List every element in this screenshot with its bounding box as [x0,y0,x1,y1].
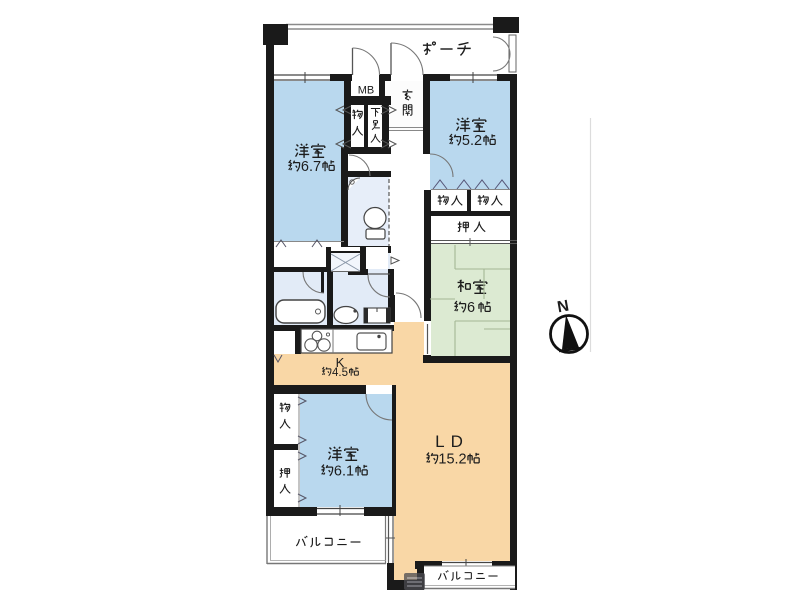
svg-text:N: N [556,298,570,317]
svg-text:15.2: 15.2 [438,452,466,468]
svg-text:5.2: 5.2 [462,133,482,149]
svg-text:6: 6 [467,300,475,316]
svg-text:6.1: 6.1 [334,464,354,480]
svg-text:MB: MB [358,85,375,97]
svg-text:LD: LD [435,432,469,451]
svg-text:6.7: 6.7 [301,159,321,175]
svg-text:4.5: 4.5 [332,367,348,379]
